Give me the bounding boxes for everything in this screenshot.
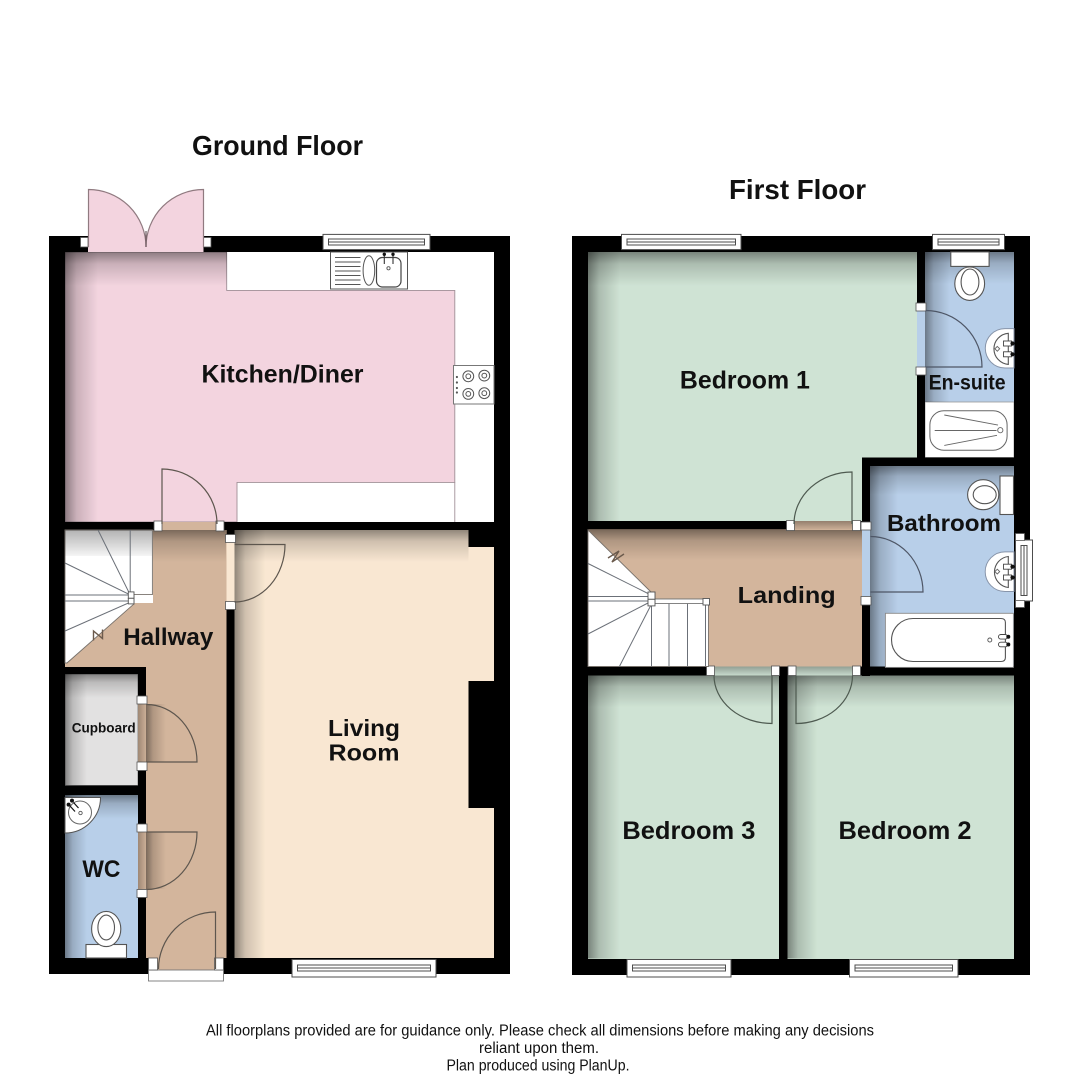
svg-text:En-suite: En-suite bbox=[929, 372, 1006, 395]
svg-text:reliant upon them.: reliant upon them. bbox=[479, 1040, 599, 1057]
svg-text:Bathroom: Bathroom bbox=[887, 510, 1001, 536]
svg-text:Living: Living bbox=[328, 715, 400, 741]
svg-text:Bedroom 2: Bedroom 2 bbox=[839, 817, 972, 845]
svg-text:All floorplans provided are fo: All floorplans provided are for guidance… bbox=[206, 1023, 874, 1040]
svg-text:Plan produced using PlanUp.: Plan produced using PlanUp. bbox=[447, 1058, 630, 1075]
svg-text:Ground Floor: Ground Floor bbox=[192, 130, 363, 161]
svg-text:Cupboard: Cupboard bbox=[72, 720, 136, 736]
svg-text:Kitchen/Diner: Kitchen/Diner bbox=[202, 361, 364, 389]
svg-text:Bedroom 3: Bedroom 3 bbox=[622, 817, 755, 845]
svg-text:Room: Room bbox=[329, 740, 400, 766]
svg-text:WC: WC bbox=[82, 856, 120, 883]
svg-text:Landing: Landing bbox=[738, 582, 836, 608]
svg-text:First Floor: First Floor bbox=[729, 174, 866, 205]
svg-text:Hallway: Hallway bbox=[123, 624, 214, 651]
svg-text:Bedroom 1: Bedroom 1 bbox=[680, 367, 810, 395]
